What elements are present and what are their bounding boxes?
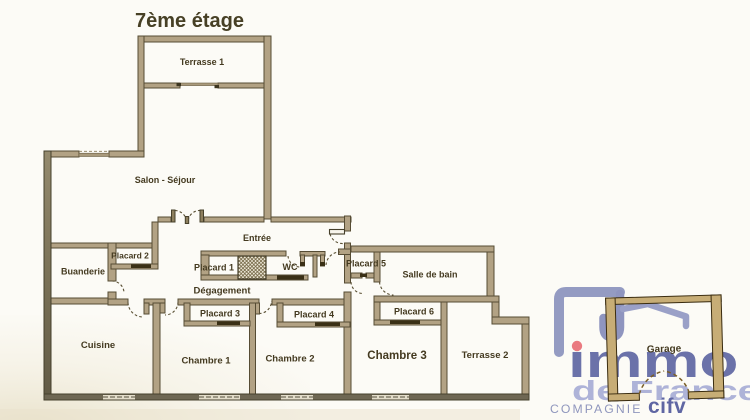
svg-text:cifv: cifv <box>648 395 686 418</box>
svg-text:Salon - Séjour: Salon - Séjour <box>135 175 196 185</box>
svg-text:Chambre 1: Chambre 1 <box>181 356 231 367</box>
svg-text:Terrasse 1: Terrasse 1 <box>180 57 224 67</box>
svg-text:Chambre 3: Chambre 3 <box>367 350 426 362</box>
svg-text:Terrasse 2: Terrasse 2 <box>462 350 509 361</box>
svg-text:Chambre 2: Chambre 2 <box>265 354 314 365</box>
svg-text:COMPAGNIE: COMPAGNIE <box>550 402 642 416</box>
svg-text:Placard 3: Placard 3 <box>200 309 240 319</box>
svg-text:Placard 5: Placard 5 <box>346 259 386 269</box>
svg-text:Salle de bain: Salle de bain <box>402 270 457 280</box>
svg-text:Buanderie: Buanderie <box>61 267 105 277</box>
svg-text:Cuisine: Cuisine <box>81 340 115 351</box>
svg-text:7ème étage: 7ème étage <box>135 10 244 32</box>
svg-text:Placard 4: Placard 4 <box>294 310 334 320</box>
svg-text:WC: WC <box>283 262 298 272</box>
svg-text:Placard 6: Placard 6 <box>394 307 434 317</box>
svg-text:Placard 2: Placard 2 <box>111 251 149 261</box>
svg-text:Entrée: Entrée <box>243 233 271 243</box>
svg-text:Garage: Garage <box>647 344 682 356</box>
svg-text:Dégagement: Dégagement <box>193 286 251 297</box>
svg-text:Placard 1: Placard 1 <box>194 263 234 273</box>
